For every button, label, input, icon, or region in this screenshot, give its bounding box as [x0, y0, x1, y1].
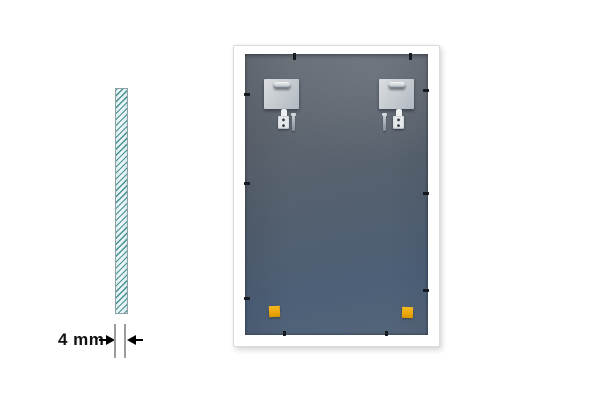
screw-left-icon — [292, 113, 295, 131]
dimension-arrow-left-icon — [134, 339, 143, 341]
retainer-clip — [423, 89, 429, 92]
corner-pad-right — [402, 307, 413, 318]
thickness-label: 4 mm — [58, 330, 98, 350]
product-figure: 4 mm — [0, 0, 600, 400]
glass-cross-section-icon — [115, 88, 128, 314]
screw-right-icon — [383, 113, 386, 131]
retainer-clip — [244, 182, 250, 185]
mounting-plate-left — [264, 79, 299, 109]
wall-plug-right-icon — [393, 116, 404, 129]
extension-line-right — [124, 324, 126, 358]
hanger-slot-icon — [388, 82, 405, 88]
retainer-clip — [283, 331, 286, 336]
mirror-frame — [233, 45, 440, 347]
retainer-clip — [293, 53, 296, 60]
extension-line-left — [114, 324, 116, 358]
retainer-clip — [244, 93, 250, 96]
mounting-plate-right — [379, 79, 414, 109]
hanger-slot-icon — [273, 82, 290, 88]
wall-plug-left-icon — [278, 116, 289, 129]
retainer-clip — [385, 331, 388, 336]
corner-pad-left — [269, 306, 281, 318]
retainer-clip — [423, 289, 429, 292]
retainer-clip — [423, 192, 429, 195]
mirror-back-panel — [245, 54, 428, 335]
retainer-clip — [409, 53, 412, 60]
retainer-clip — [244, 297, 250, 300]
